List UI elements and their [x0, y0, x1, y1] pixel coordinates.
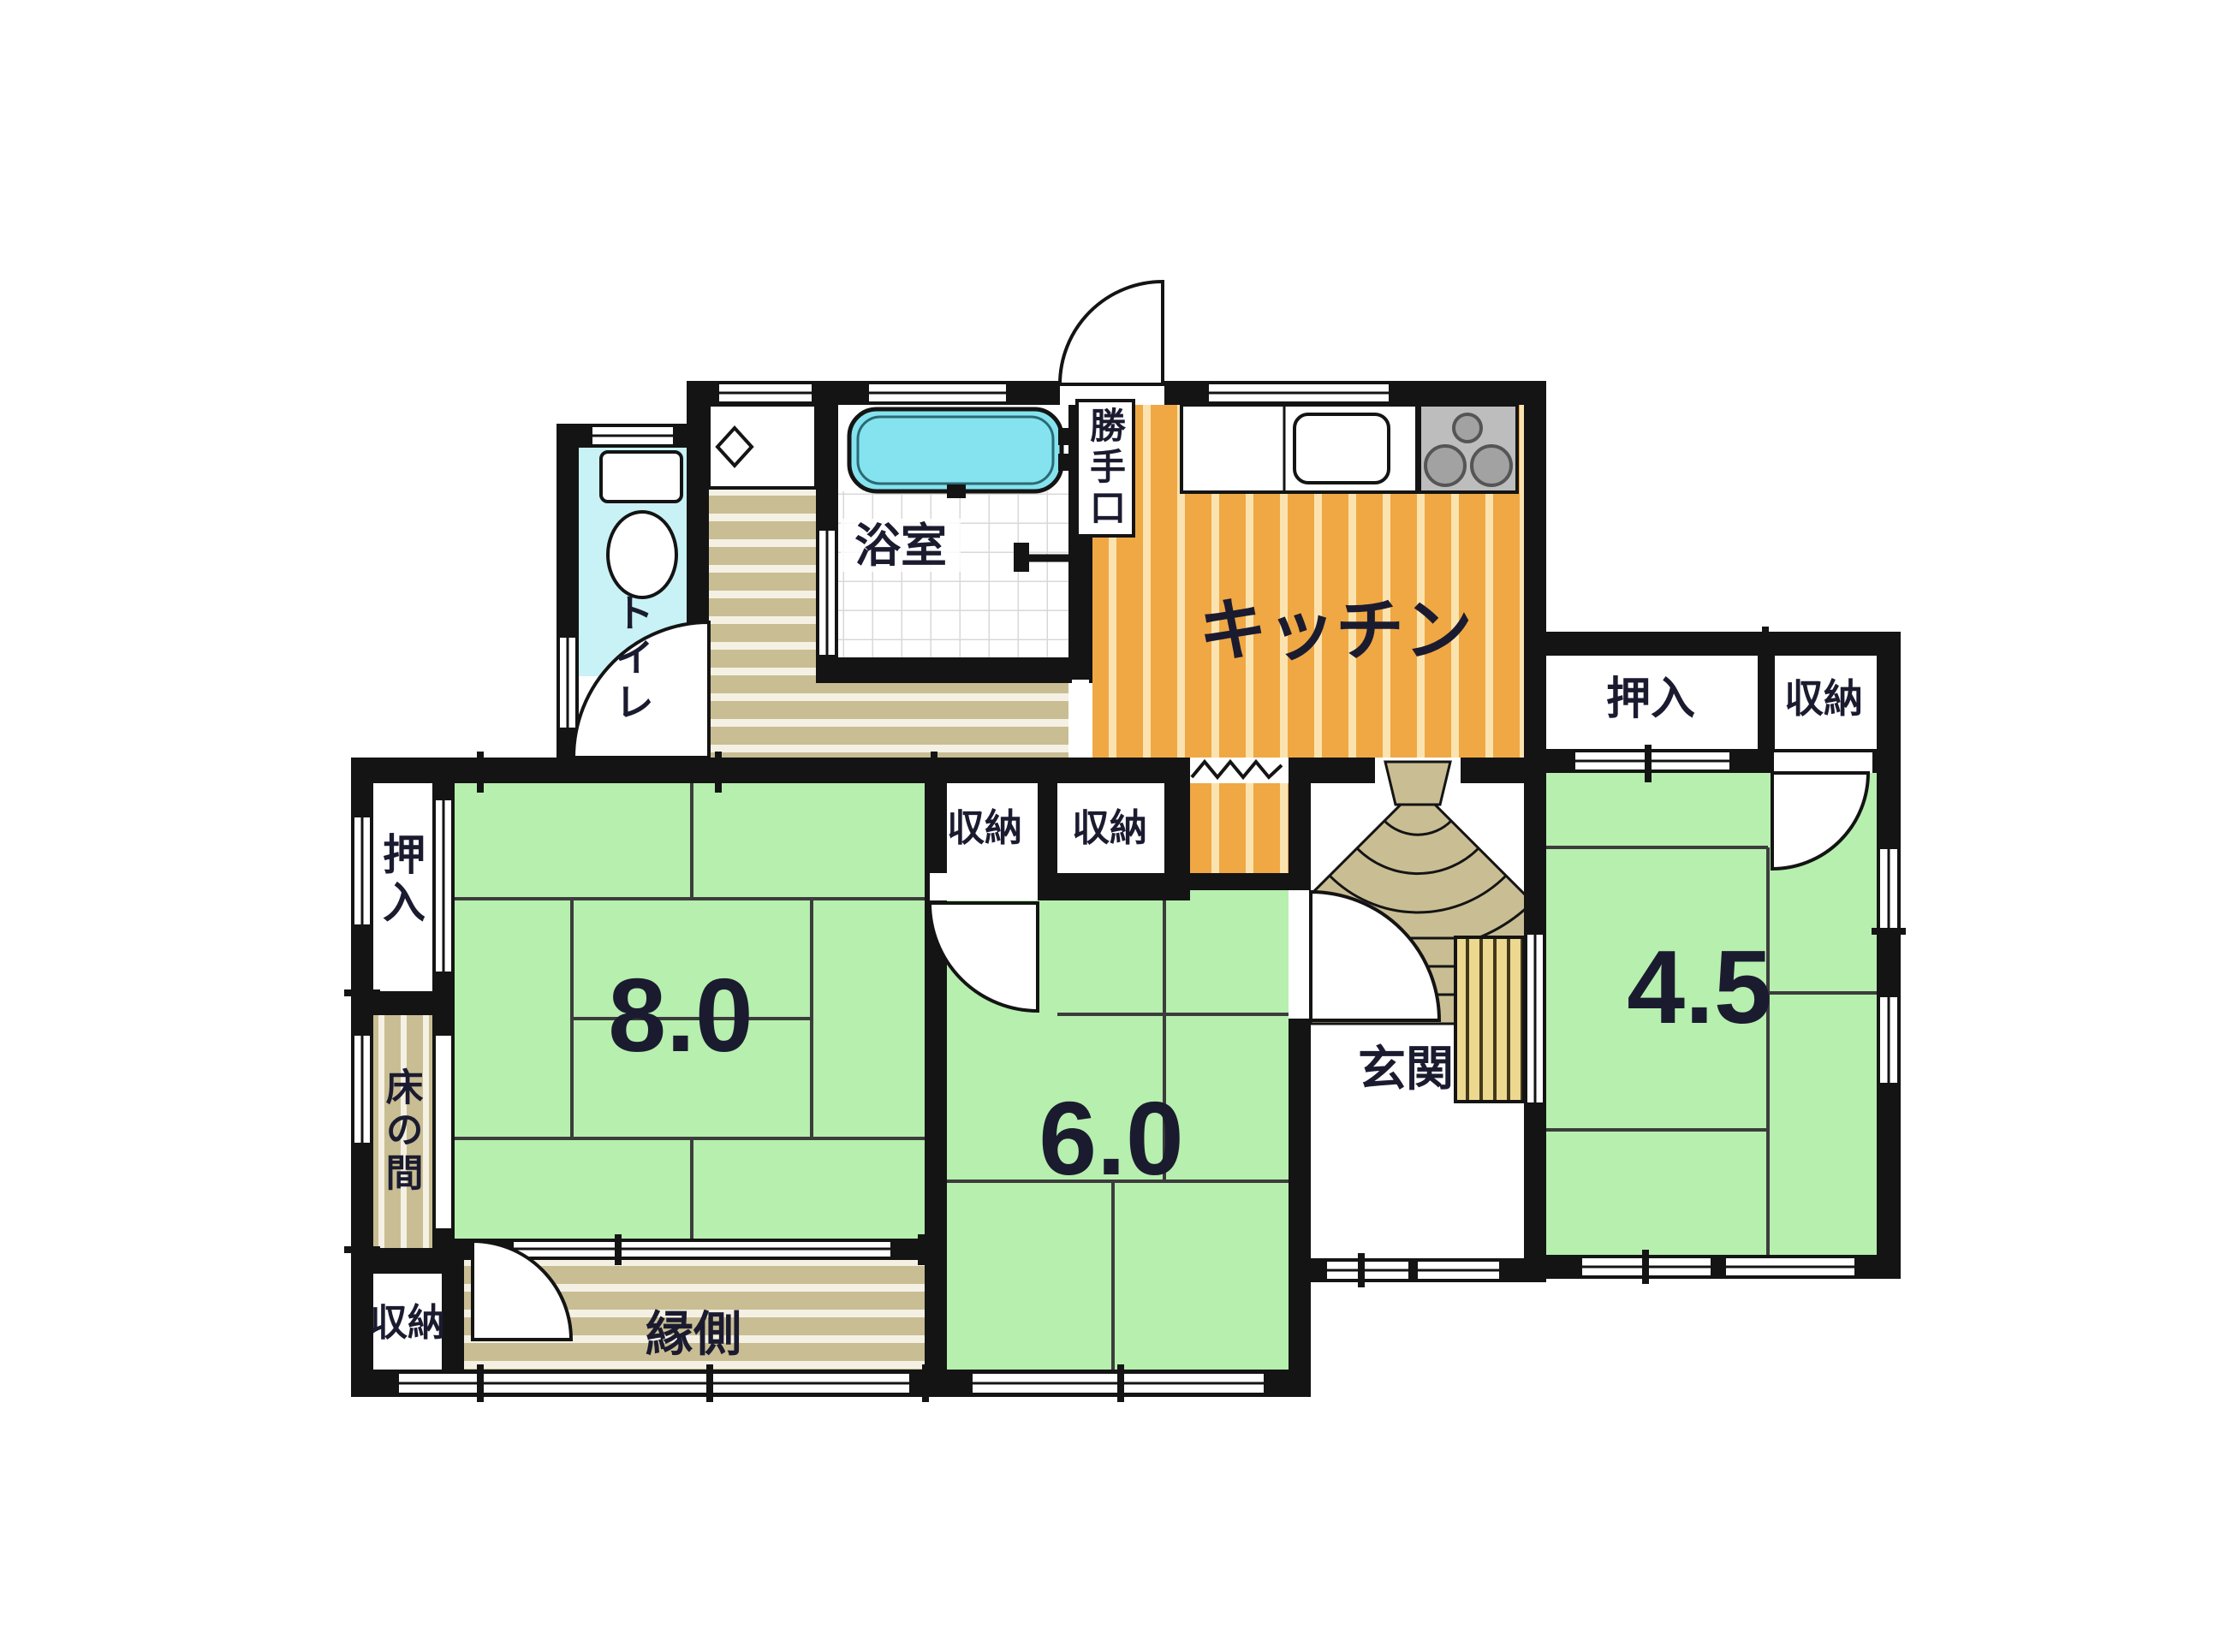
toilet-label: トイレ: [610, 592, 654, 726]
opening-hall-kitchen: [1072, 680, 1089, 758]
sliding-door-bathroom: [819, 531, 835, 655]
window-east-1: [1880, 849, 1897, 930]
window-genkan-south-1: [1327, 1262, 1408, 1279]
bathtub: [849, 409, 1072, 498]
bathroom-tile-floor: [838, 491, 1068, 657]
fusuma-oshiire-east: [1575, 752, 1729, 770]
hall-closet-1-label: 収納: [947, 807, 1022, 849]
kitchen-corridor-floor: [1190, 777, 1289, 873]
opening-closet-east: [1774, 752, 1872, 773]
window-engawa-top: [514, 1242, 890, 1257]
hall-closet-2-label: 収納: [1072, 807, 1147, 849]
oshiire-west-label: 押入: [377, 832, 426, 928]
opening-genkan-door: [1292, 894, 1307, 1015]
window-genkan-south-2: [1418, 1262, 1499, 1279]
engawa-label: 縁側: [646, 1307, 741, 1361]
window-kitchen-sink: [1209, 384, 1389, 401]
tatami-6-label: 6.0: [1039, 1080, 1184, 1197]
opening-room6-door: [930, 873, 1038, 900]
kitchen-label: キッチン: [1199, 592, 1473, 669]
wall-kitchen-genkan-right: [1524, 381, 1546, 1282]
back-door-arc: [1060, 282, 1163, 384]
wall-between-closets: [1038, 775, 1057, 873]
tatami-8-label: 8.0: [608, 957, 753, 1073]
closet-southwest-label: 収納: [370, 1302, 445, 1344]
accordion-door: [1190, 758, 1289, 783]
wall-room8-room6: [925, 758, 947, 1397]
window-east-2: [1880, 997, 1897, 1083]
washbasin: [709, 405, 816, 488]
genkan-top-step: [1385, 762, 1450, 805]
floor-plan-page: トイレ 浴室 キッチン 勝手口 収納 収納 8.0 6.0 4.5 押入 床の間…: [0, 0, 2226, 1652]
wall-genkan-top-right: [1461, 758, 1546, 783]
floor-plan-drawing: トイレ 浴室 キッチン 勝手口 収納 収納 8.0 6.0 4.5 押入 床の間…: [0, 0, 2226, 1652]
fusuma-oshiire-west: [436, 800, 451, 972]
opening-tokonoma: [436, 1036, 451, 1228]
back-door-label: 勝手口: [1086, 407, 1126, 530]
oshiire-east-label: 押入: [1606, 674, 1695, 724]
stove: [1420, 405, 1517, 492]
tatami-6-floor-upper: [1190, 890, 1289, 902]
window-west-1: [354, 817, 370, 924]
entrance-door: [1527, 935, 1543, 1102]
hallway-floor: [709, 676, 1068, 758]
tatami-45-label: 4.5: [1627, 929, 1772, 1045]
wall-corridor-bottom: [1190, 873, 1289, 890]
sink-counter: [1181, 405, 1417, 492]
window-toilet-top: [592, 427, 673, 444]
washroom-floor: [709, 488, 816, 676]
bathroom-label: 浴室: [854, 520, 947, 572]
window-west-2: [354, 1036, 370, 1143]
window-washroom-top: [719, 384, 812, 401]
entrance-mat: [1455, 937, 1524, 1102]
window-bathroom-top: [869, 384, 1006, 401]
window-tatami45-south-2: [1726, 1258, 1854, 1275]
genkan-label: 玄関: [1358, 1042, 1454, 1096]
wall-east-block-top: [1534, 632, 1901, 656]
wall-outer-right: [1877, 632, 1901, 1279]
window-toilet-left: [560, 638, 575, 728]
closet-east-label: 収納: [1784, 676, 1863, 721]
window-engawa-south: [399, 1374, 909, 1393]
tokonoma-label: 床の間: [380, 1067, 424, 1196]
wall-bath-bottom: [816, 657, 1092, 683]
wall-genkan-left-upper: [1289, 758, 1311, 890]
wall-genkan-left-lower: [1289, 1019, 1311, 1397]
